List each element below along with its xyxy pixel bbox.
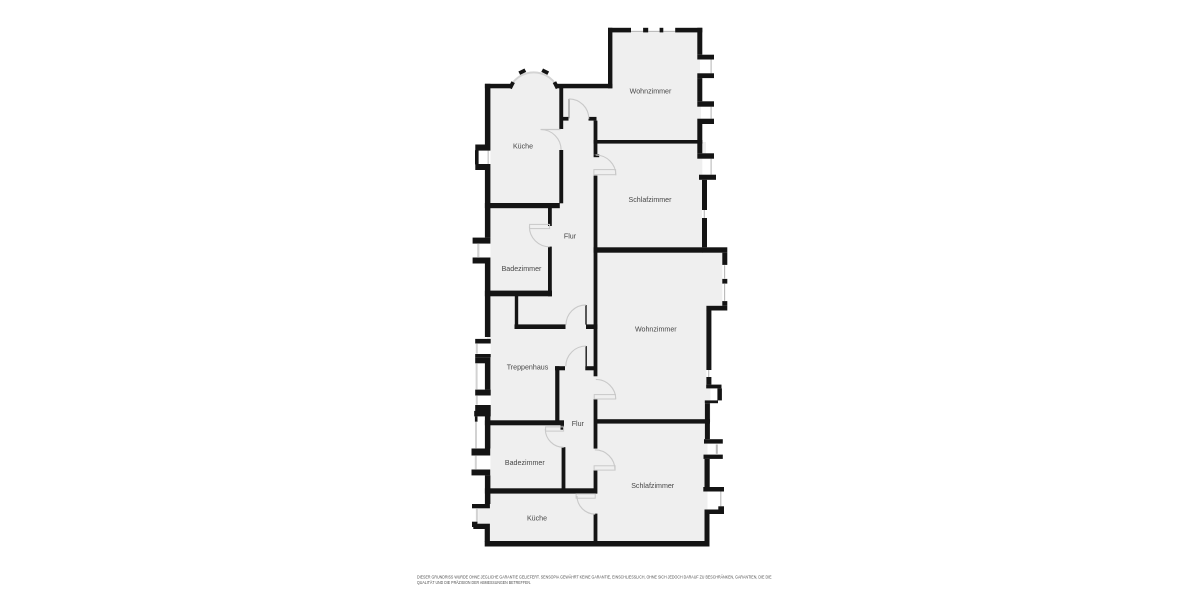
svg-text:Schlafzimmer: Schlafzimmer <box>629 196 673 204</box>
svg-text:Treppenhaus: Treppenhaus <box>507 364 549 372</box>
svg-text:QUALITÄT UND DIE PRÄZISION DER: QUALITÄT UND DIE PRÄZISION DER ABMESSUNG… <box>417 579 531 585</box>
svg-text:Küche: Küche <box>527 515 547 523</box>
svg-text:Küche: Küche <box>513 143 533 151</box>
svg-text:Flur: Flur <box>572 420 585 428</box>
svg-text:Wohnzimmer: Wohnzimmer <box>630 88 672 96</box>
svg-text:Flur: Flur <box>564 233 577 241</box>
svg-text:Schlafzimmer: Schlafzimmer <box>631 482 675 490</box>
svg-text:Badezimmer: Badezimmer <box>502 265 542 273</box>
svg-text:DIESER GRUNDRISS WURDE OHNE JE: DIESER GRUNDRISS WURDE OHNE JEGLICHE GAR… <box>417 573 772 579</box>
svg-text:Wohnzimmer: Wohnzimmer <box>635 326 677 334</box>
svg-text:Badezimmer: Badezimmer <box>505 459 545 467</box>
